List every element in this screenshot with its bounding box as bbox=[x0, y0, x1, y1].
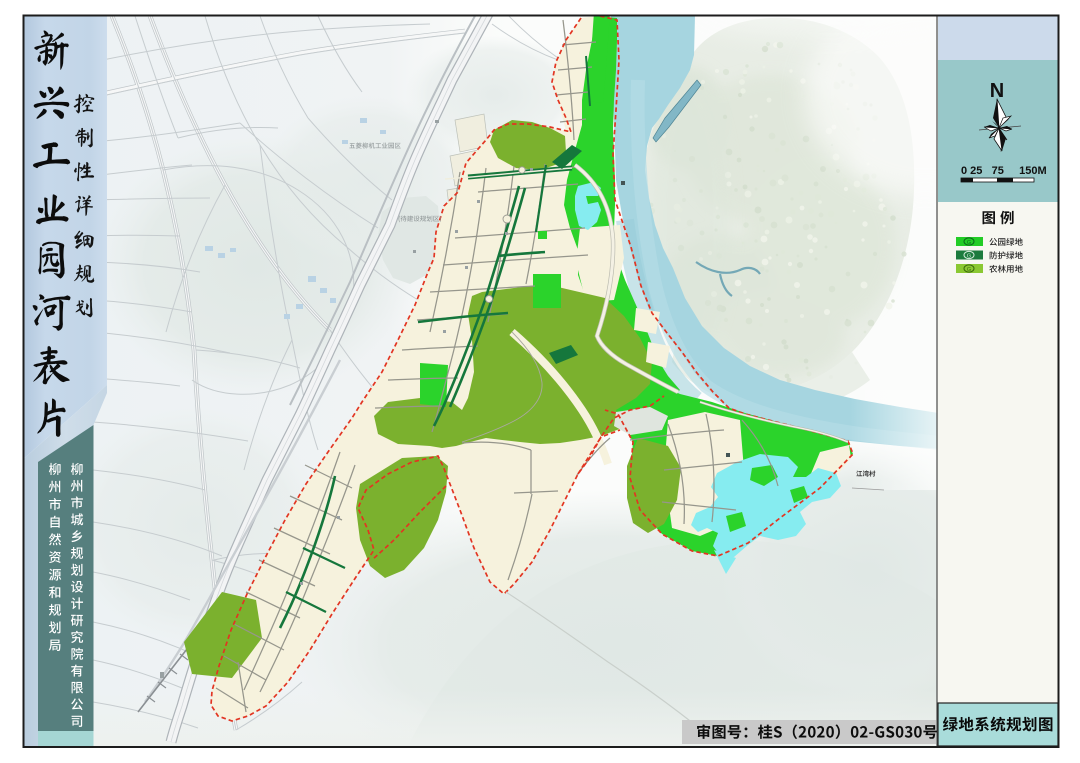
svg-text:G: G bbox=[967, 267, 971, 273]
svg-text:G: G bbox=[967, 240, 971, 246]
svg-text:G: G bbox=[967, 254, 971, 260]
svg-text:0 25 75 150M: 0 25 75 150M bbox=[961, 165, 1047, 177]
